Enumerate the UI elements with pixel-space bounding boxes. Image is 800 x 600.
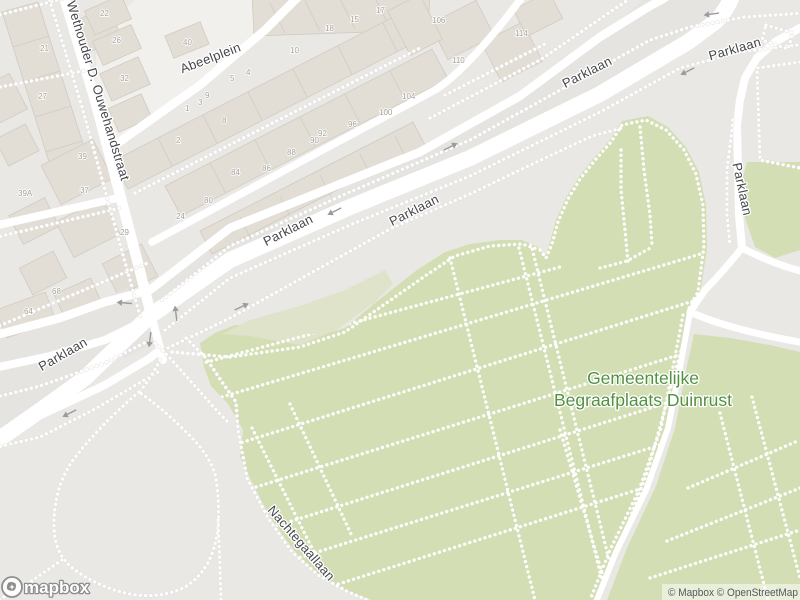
svg-text:3: 3 (198, 98, 203, 107)
svg-text:39A: 39A (18, 189, 33, 198)
svg-text:29: 29 (120, 228, 129, 237)
svg-text:64: 64 (24, 307, 33, 316)
svg-text:21: 21 (40, 44, 49, 53)
svg-text:10: 10 (290, 46, 299, 55)
svg-text:18: 18 (325, 24, 334, 33)
svg-text:8: 8 (222, 116, 227, 125)
svg-text:Gemeentelijke: Gemeentelijke (587, 368, 699, 388)
svg-text:88: 88 (287, 148, 296, 157)
svg-text:92: 92 (318, 129, 327, 138)
svg-text:17: 17 (376, 6, 385, 15)
svg-text:2: 2 (176, 136, 181, 145)
svg-text:Begraafplaats Duinrust: Begraafplaats Duinrust (554, 390, 732, 410)
svg-text:9: 9 (205, 91, 210, 100)
svg-text:1: 1 (185, 104, 190, 113)
svg-text:mapbox: mapbox (24, 578, 90, 597)
svg-text:100: 100 (379, 108, 393, 117)
svg-text:84: 84 (231, 168, 240, 177)
svg-text:26: 26 (112, 36, 121, 45)
svg-text:68: 68 (52, 287, 61, 296)
svg-text:104: 104 (402, 92, 416, 101)
svg-text:40: 40 (183, 38, 192, 47)
svg-text:27: 27 (38, 92, 47, 101)
svg-text:22: 22 (100, 9, 109, 18)
svg-text:96: 96 (348, 120, 357, 129)
svg-text:110: 110 (452, 56, 465, 65)
svg-text:37: 37 (80, 186, 89, 195)
svg-text:114: 114 (515, 29, 528, 38)
svg-text:32: 32 (120, 74, 129, 83)
svg-text:39: 39 (78, 152, 87, 161)
svg-text:4: 4 (246, 68, 251, 77)
svg-text:86: 86 (262, 164, 271, 173)
svg-text:5: 5 (230, 74, 235, 83)
svg-text:106: 106 (432, 16, 446, 25)
svg-text:80: 80 (204, 196, 213, 205)
svg-text:© Mapbox © OpenStreetMap: © Mapbox © OpenStreetMap (668, 587, 798, 599)
svg-text:15: 15 (350, 15, 359, 24)
svg-text:24: 24 (176, 212, 185, 221)
